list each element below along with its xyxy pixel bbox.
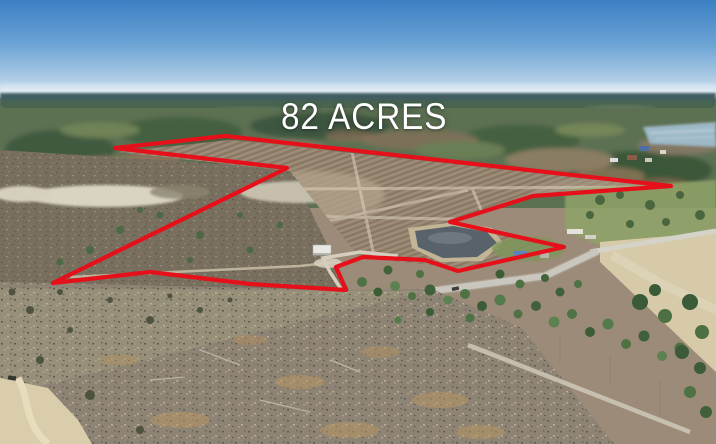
sky (0, 0, 716, 98)
acreage-label: 82 ACRES (281, 96, 447, 138)
foreground-scrub (0, 282, 716, 444)
aerial-property-photo: 82 ACRES (0, 0, 716, 444)
aerial-scene (0, 0, 716, 444)
